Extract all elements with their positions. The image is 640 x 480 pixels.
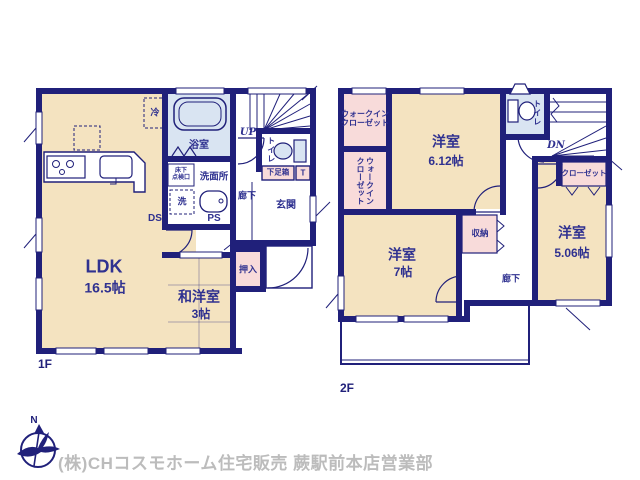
room-7-label: 洋室 — [388, 247, 416, 264]
wic-lower-label: ウォークイン クローゼット — [356, 157, 375, 205]
stairs-up-label: UP — [240, 127, 256, 139]
washbasin-icon — [200, 191, 227, 212]
ldk-size-label: 16.5帖 — [84, 280, 125, 297]
room-612-label: 洋室 — [432, 134, 460, 151]
washitsu-size-label: 3帖 — [192, 307, 211, 321]
closet-2f-label: クローゼット — [562, 170, 607, 179]
genkan-label: 玄関 — [276, 200, 296, 212]
rouka-2f-label: 廊下 — [502, 274, 520, 285]
ds-label: DS — [148, 213, 162, 225]
washitsu-label: 和洋室 — [178, 289, 220, 306]
room-7-size-label: 7帖 — [394, 265, 413, 279]
floor-plan-drawing — [0, 0, 640, 480]
rouka-1f-label: 廊下 — [238, 191, 256, 202]
toilet-vent — [510, 84, 530, 94]
room-612-size-label: 6.12帖 — [428, 154, 463, 168]
senmenjo-label: 洗面所 — [200, 171, 229, 182]
room-506-size-label: 5.06帖 — [554, 246, 589, 260]
floor1-plan — [24, 86, 330, 354]
stairs-up-icon — [250, 94, 310, 130]
storage-label: 収納 — [471, 228, 488, 238]
ps-label: PS — [207, 213, 220, 225]
stairs-down-label: DN — [547, 140, 565, 152]
wic-upper-label: ウォークイン クローゼット — [341, 110, 389, 129]
inspection-hatch-label: 床下 点検口 — [172, 168, 190, 182]
floor-plan-canvas: LDK 16.5帖 和洋室 3帖 押入 玄関 廊下 下足箱 T トイレ UP 浴… — [0, 0, 640, 480]
toilet-2f-label: トイレ — [532, 100, 541, 127]
ldk-label: LDK — [86, 256, 123, 277]
floor1-tag: 1F — [38, 357, 52, 371]
washer-label: 洗 — [177, 197, 186, 208]
floor2-tag: 2F — [340, 381, 354, 395]
toilet-icon-1f — [274, 140, 306, 162]
toilet-1f-label: トイレ — [266, 137, 275, 164]
company-name: (株)CHコスモホーム住宅販売 蕨駅前本店営業部 — [58, 449, 433, 474]
porch — [266, 246, 312, 288]
oshiire-label: 押入 — [239, 265, 257, 276]
getabako-label: 下足箱 — [267, 169, 290, 178]
bathtub-icon — [174, 98, 226, 130]
stove-icon — [47, 156, 85, 178]
compass-north-label: N — [30, 415, 37, 427]
room-506-label: 洋室 — [558, 225, 586, 242]
toilet-cabinet-label: T — [301, 168, 306, 177]
bath-label: 浴室 — [189, 140, 209, 152]
compass-icon — [17, 424, 60, 467]
fridge-label: 冷 — [150, 108, 159, 119]
